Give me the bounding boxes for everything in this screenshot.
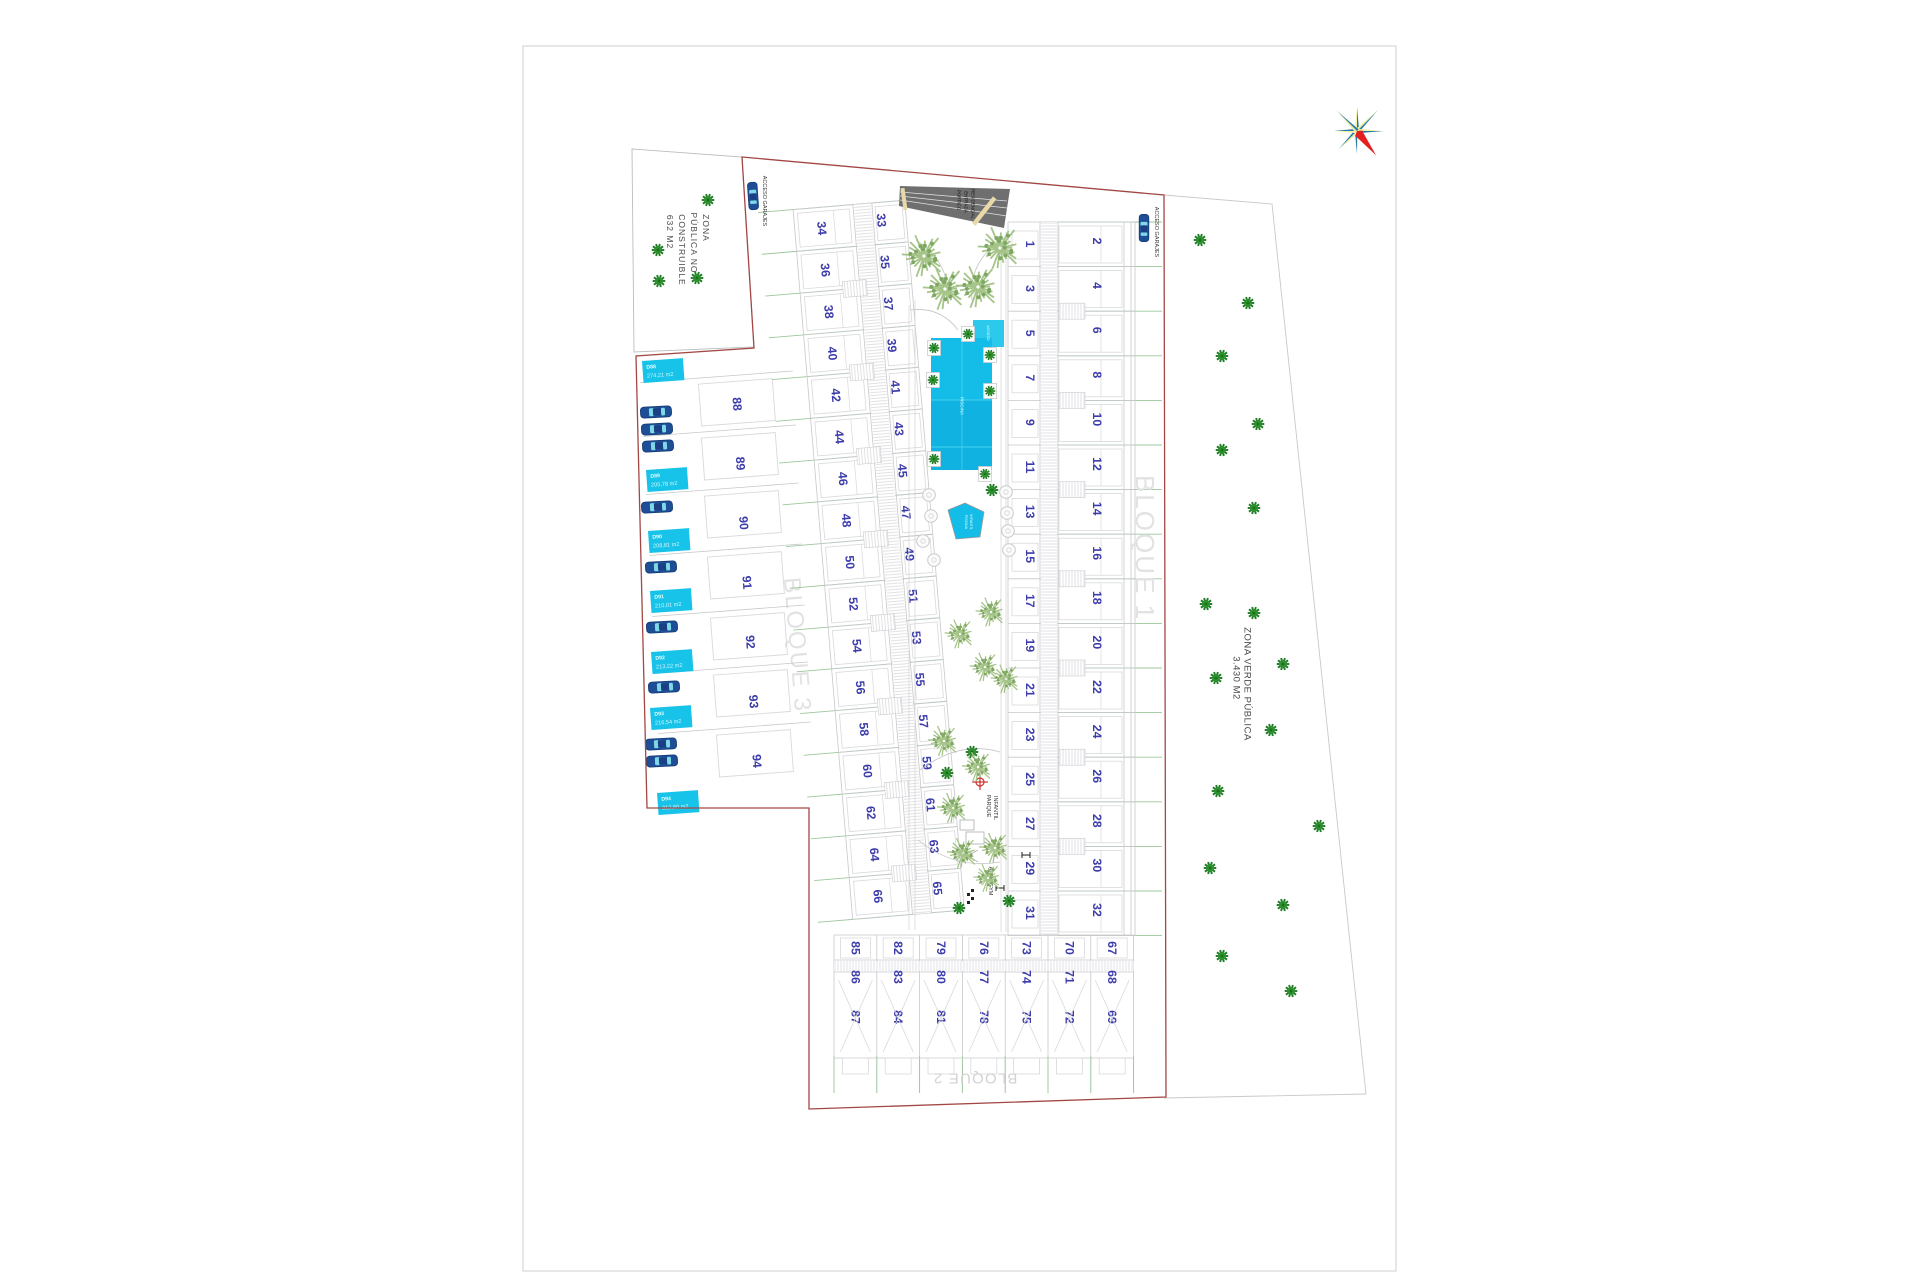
svg-text:84: 84 (891, 1010, 905, 1024)
svg-text:38: 38 (821, 304, 836, 319)
svg-text:21: 21 (1023, 683, 1037, 697)
svg-text:25: 25 (1023, 772, 1037, 786)
svg-text:87: 87 (848, 1010, 862, 1024)
svg-text:9: 9 (1023, 419, 1037, 426)
svg-text:23: 23 (1023, 728, 1037, 742)
svg-text:85: 85 (848, 941, 862, 955)
svg-text:57: 57 (916, 714, 931, 729)
svg-text:71: 71 (1062, 970, 1076, 984)
svg-text:50: 50 (842, 555, 857, 570)
svg-text:81: 81 (934, 1010, 948, 1024)
svg-text:ZONA VERDE PÚBLICA: ZONA VERDE PÚBLICA (1242, 627, 1253, 741)
svg-text:36: 36 (818, 263, 833, 278)
svg-text:7: 7 (1023, 374, 1037, 381)
svg-text:73: 73 (1020, 941, 1034, 955)
svg-text:30: 30 (1090, 859, 1104, 873)
svg-text:31: 31 (1023, 906, 1037, 920)
svg-text:D88: D88 (646, 364, 656, 371)
svg-text:RESIDENCIAL: RESIDENCIAL (971, 189, 976, 220)
svg-text:58: 58 (856, 722, 871, 737)
svg-text:CONSTRUIBLE: CONSTRUIBLE (677, 214, 687, 285)
svg-text:5: 5 (1023, 330, 1037, 337)
svg-text:53: 53 (909, 630, 924, 645)
svg-text:BLOQUE 1: BLOQUE 1 (1130, 475, 1160, 621)
svg-text:29: 29 (1023, 862, 1037, 876)
svg-text:47: 47 (898, 505, 913, 520)
svg-text:PISCINA: PISCINA (960, 397, 965, 415)
svg-text:D90: D90 (652, 534, 662, 541)
svg-text:56: 56 (853, 680, 868, 695)
svg-text:PARQUE: PARQUE (985, 795, 991, 818)
svg-text:16: 16 (1090, 546, 1104, 560)
svg-text:78: 78 (977, 1010, 991, 1024)
svg-text:92: 92 (743, 635, 758, 650)
svg-text:8: 8 (1090, 371, 1104, 378)
svg-text:ZONA: ZONA (701, 214, 711, 242)
svg-text:34: 34 (814, 221, 829, 236)
svg-text:26: 26 (1090, 769, 1104, 783)
svg-text:20: 20 (1090, 636, 1104, 650)
svg-text:3: 3 (1023, 285, 1037, 292)
svg-text:65: 65 (930, 881, 945, 896)
svg-text:80: 80 (934, 970, 948, 984)
svg-text:PÚBLICA NO: PÚBLICA NO (689, 212, 699, 273)
svg-text:4: 4 (1090, 282, 1104, 289)
svg-text:66: 66 (870, 889, 885, 904)
svg-text:PISCINA: PISCINA (964, 515, 968, 530)
svg-text:48: 48 (839, 513, 854, 528)
svg-text:2: 2 (1090, 238, 1104, 245)
svg-text:74: 74 (1020, 970, 1034, 984)
svg-text:76: 76 (977, 941, 991, 955)
svg-text:D91: D91 (654, 594, 664, 601)
svg-text:43: 43 (891, 422, 906, 437)
svg-text:54: 54 (849, 638, 864, 653)
svg-text:3.430 M2: 3.430 M2 (1231, 656, 1242, 700)
svg-text:40: 40 (825, 346, 840, 361)
svg-text:INFANTIL: INFANTIL (992, 796, 998, 820)
svg-text:14: 14 (1090, 502, 1104, 516)
svg-text:82: 82 (891, 941, 905, 955)
svg-text:D89: D89 (650, 473, 660, 480)
svg-text:18: 18 (1090, 591, 1104, 605)
svg-text:55: 55 (912, 672, 927, 687)
svg-text:24: 24 (1090, 725, 1104, 739)
svg-text:13: 13 (1023, 505, 1037, 519)
svg-text:37: 37 (881, 296, 896, 311)
svg-text:32: 32 (1090, 903, 1104, 917)
svg-text:28: 28 (1090, 814, 1104, 828)
svg-text:72: 72 (1062, 1010, 1076, 1024)
svg-text:68: 68 (1105, 970, 1119, 984)
svg-text:52: 52 (846, 597, 861, 612)
svg-text:PORTICO: PORTICO (957, 190, 962, 211)
svg-text:INFANTIL: INFANTIL (969, 514, 973, 529)
svg-text:61: 61 (923, 797, 938, 812)
svg-text:51: 51 (905, 589, 920, 604)
svg-text:ACCESO GARAJES: ACCESO GARAJES (1153, 207, 1159, 258)
svg-text:70: 70 (1062, 941, 1076, 955)
svg-text:64: 64 (867, 847, 882, 862)
svg-text:39: 39 (884, 338, 899, 353)
svg-text:632 M2: 632 M2 (665, 215, 675, 249)
svg-text:12: 12 (1090, 457, 1104, 471)
svg-text:ACCESO: ACCESO (986, 325, 990, 340)
svg-text:ACCESO GARAJES: ACCESO GARAJES (761, 176, 767, 227)
svg-text:15: 15 (1023, 549, 1037, 563)
svg-text:D94: D94 (661, 796, 671, 803)
svg-text:22: 22 (1090, 680, 1104, 694)
svg-text:42: 42 (828, 388, 843, 403)
svg-text:27: 27 (1023, 817, 1037, 831)
svg-text:17: 17 (1023, 594, 1037, 608)
svg-text:41: 41 (888, 380, 903, 395)
svg-text:11: 11 (1023, 461, 1037, 474)
svg-text:75: 75 (1020, 1010, 1034, 1024)
svg-text:60: 60 (860, 764, 875, 779)
svg-text:BLOQUE 2: BLOQUE 2 (933, 1070, 1018, 1087)
svg-text:46: 46 (835, 471, 850, 486)
svg-text:44: 44 (832, 430, 847, 445)
svg-text:94: 94 (749, 754, 764, 769)
svg-text:19: 19 (1023, 639, 1037, 653)
svg-text:45: 45 (895, 463, 910, 478)
svg-text:62: 62 (863, 805, 878, 820)
svg-text:83: 83 (891, 970, 905, 984)
svg-text:35: 35 (877, 255, 892, 270)
svg-text:33: 33 (874, 213, 889, 228)
svg-text:10: 10 (1090, 413, 1104, 427)
svg-text:69: 69 (1105, 1010, 1119, 1024)
svg-text:91: 91 (739, 575, 754, 590)
svg-text:67: 67 (1105, 941, 1119, 955)
svg-text:88: 88 (730, 397, 745, 412)
svg-text:ENTRADA: ENTRADA (964, 191, 969, 213)
svg-text:93: 93 (746, 694, 761, 709)
svg-text:89: 89 (733, 456, 748, 471)
svg-text:63: 63 (926, 839, 941, 854)
svg-text:6: 6 (1090, 327, 1104, 334)
svg-text:77: 77 (977, 970, 991, 984)
svg-text:90: 90 (736, 516, 751, 531)
svg-text:79: 79 (934, 941, 948, 955)
svg-text:D93: D93 (654, 711, 664, 718)
svg-text:D92: D92 (655, 655, 665, 662)
svg-text:1: 1 (1023, 241, 1037, 248)
svg-text:86: 86 (848, 970, 862, 984)
